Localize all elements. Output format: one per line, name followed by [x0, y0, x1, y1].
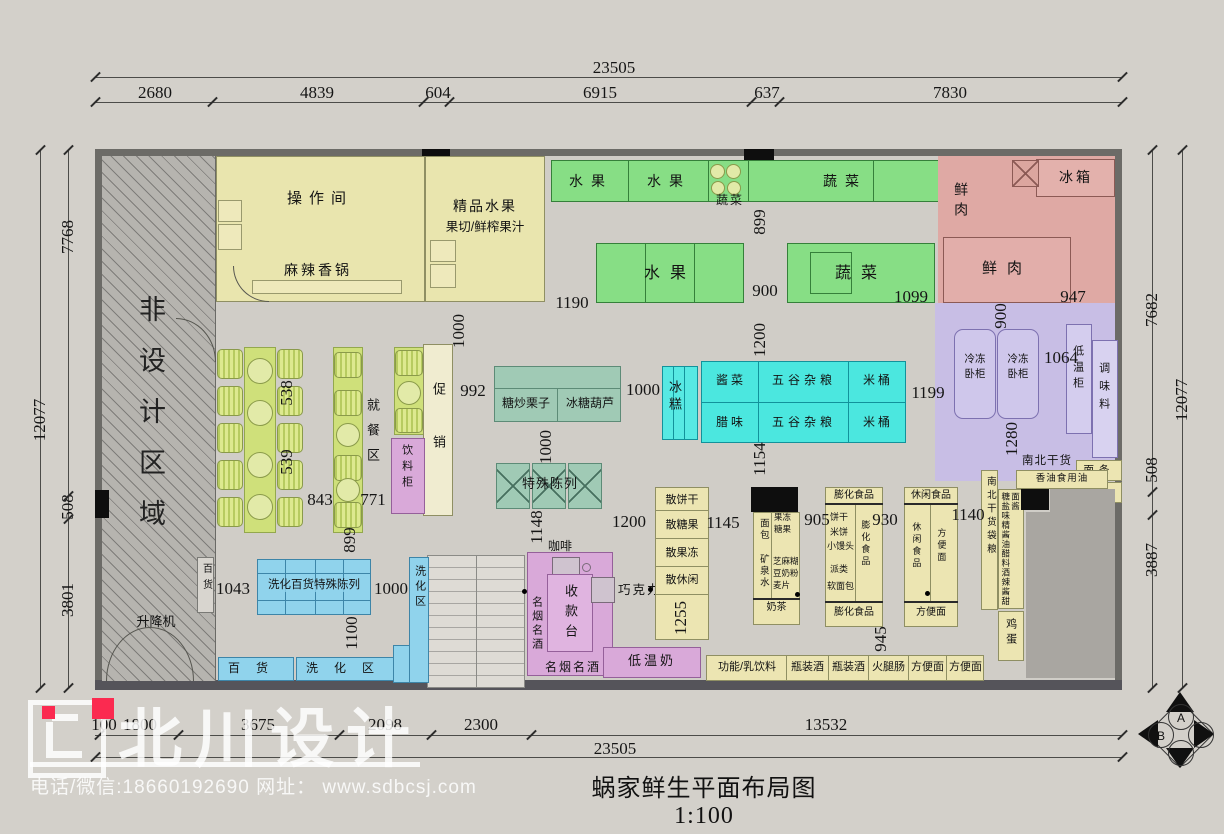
- table-seat: [336, 423, 360, 447]
- dim-right-3: 3887: [1143, 530, 1161, 590]
- dining-chair: [217, 497, 243, 527]
- coffee-label: 咖啡: [548, 540, 572, 554]
- juice-label: 果切/鲜榨果汁: [426, 220, 544, 234]
- instant-noodle-label: 方便面: [947, 661, 984, 674]
- dim-1200-bulk: 1200: [606, 513, 652, 531]
- bulk-line: [655, 538, 709, 539]
- dim-right-total: 12077: [1173, 370, 1191, 430]
- dim-left-3: 3801: [59, 570, 77, 630]
- sesame-label: 芝麻糊: [773, 557, 799, 567]
- wine-label: 瓶装酒: [787, 661, 828, 674]
- dining-chair: [217, 349, 243, 379]
- pie-label: 派类: [830, 564, 848, 574]
- dim-1043: 1043: [209, 580, 257, 598]
- water-label: 矿泉水: [757, 554, 768, 596]
- soymilk-label: 豆奶粉: [773, 569, 799, 579]
- island-line: [257, 573, 371, 574]
- gondola-line: [701, 402, 906, 403]
- fridge-label: 冰箱: [1040, 169, 1112, 185]
- gondola-line: [904, 503, 958, 505]
- gondola-line: [930, 505, 931, 601]
- bulk-line: [655, 566, 709, 567]
- dim-bottom-5: 2300: [455, 716, 507, 734]
- dot-marker: [522, 589, 527, 594]
- dim-1000-wash: 1000: [368, 580, 414, 598]
- instant-noodle-label: 方便面: [909, 661, 946, 674]
- dim-1140: 1140: [944, 506, 992, 524]
- gondola-line: [855, 505, 856, 601]
- table-seat: [397, 381, 421, 405]
- dot-marker: [925, 591, 930, 596]
- bread-label: 面包: [757, 518, 768, 550]
- dim-1280: 1280: [1003, 409, 1021, 469]
- brand-logo-glyph: [46, 722, 82, 758]
- dim-1064: 1064: [1034, 349, 1088, 367]
- storage-floor: [1050, 489, 1115, 512]
- seasoning-cabinet-label: 调味料: [1097, 362, 1110, 442]
- gondola-line: [848, 361, 849, 443]
- veg-island-label: 蔬菜: [787, 265, 935, 283]
- dim-top-6: 7830: [920, 84, 980, 102]
- table-seat: [247, 358, 273, 384]
- interior-column: [1021, 489, 1049, 510]
- premium-fruit-label: 精品水果: [432, 198, 538, 214]
- dining-chair: [217, 386, 243, 416]
- gondola-line: [753, 598, 800, 600]
- drygoods-strip-label: 南北干货袋粮: [984, 476, 995, 606]
- dim-top-total: 23505: [584, 59, 644, 77]
- dim-1154: 1154: [751, 429, 769, 489]
- dim-843: 843: [299, 491, 341, 509]
- dim-992: 992: [452, 382, 494, 400]
- dim-top-1: 2680: [125, 84, 185, 102]
- fruit-shelf-label: 水果: [632, 173, 706, 189]
- dim-1145: 1145: [700, 514, 746, 532]
- instant-noodle-vertical: 方便面: [936, 528, 946, 578]
- grain-label: 五谷杂粮: [762, 416, 846, 430]
- oil-shelf: 香油食用油: [1016, 470, 1108, 489]
- watermark-divider: [30, 762, 420, 767]
- dim-538: 538: [278, 363, 296, 423]
- dim-1200-grain: 1200: [751, 310, 769, 370]
- compass-c: C: [1168, 740, 1194, 766]
- brand-logo-bar: [52, 714, 78, 721]
- dim-right-1: 7682: [1143, 280, 1161, 340]
- dim-945: 945: [872, 609, 890, 669]
- rice-bucket-label: 米桶: [852, 374, 904, 388]
- leisure-label: 休闲食品: [904, 490, 958, 502]
- operation-room-label: 操作间: [255, 190, 385, 207]
- milktea-label: 奶茶: [753, 602, 800, 614]
- dim-top-2: 4839: [287, 84, 347, 102]
- counter: [430, 264, 456, 288]
- fruit-island-label: 水果: [596, 265, 744, 283]
- island-line: [257, 600, 371, 601]
- dim-top-4: 6915: [570, 84, 630, 102]
- cured-label: 腊味: [706, 416, 756, 430]
- storage-floor: [1026, 512, 1115, 678]
- veg-shelf-label: 蔬菜: [790, 173, 900, 189]
- oat-label: 麦片: [773, 581, 790, 591]
- compass: A B C D: [1138, 692, 1224, 778]
- brand-logo-red-accent: [42, 706, 55, 719]
- haw-label: 冰糖葫芦: [558, 397, 622, 411]
- dim-1000-chestnut: 1000: [537, 417, 555, 477]
- dim-line-right: [1152, 150, 1153, 688]
- produce-bin: [710, 164, 725, 179]
- dim-line-top: [95, 102, 1122, 103]
- wash-zone-strip-label: 洗化区: [413, 565, 426, 621]
- watermark-contact: 电话/微信:18660192690 网址： www.sdbcsj.com: [30, 772, 477, 799]
- dim-900: 900: [744, 282, 786, 300]
- dining-chair: [395, 408, 423, 433]
- cabinet-line: [684, 366, 685, 440]
- puffed-label: 膨化食品: [825, 490, 883, 502]
- table-seat: [247, 494, 273, 520]
- special-display-label: 特殊陈列: [504, 477, 596, 492]
- corner-shelf: [393, 645, 410, 683]
- compass-d: D: [1188, 722, 1214, 748]
- wine-label: 瓶装酒: [829, 661, 868, 674]
- dim-left-2: 508: [59, 477, 77, 537]
- wash-special-label: 洗化百货特殊陈列: [259, 579, 369, 592]
- dim-line-top-total: [95, 77, 1122, 78]
- shelf-divider: [628, 160, 629, 202]
- condiment-strip-label: 糖盐味精酱油醋料酒辣酱甜面酱: [1000, 492, 1023, 606]
- produce-bin: [726, 164, 741, 179]
- ice-cream-label: 冰糕: [666, 380, 681, 428]
- stairs-center-line: [476, 555, 477, 688]
- dept-shelf-row: 百货: [218, 657, 294, 681]
- tobacco-label-bottom: 名烟名酒: [545, 661, 601, 675]
- bulk-jelly-label: 散果冻: [655, 547, 709, 560]
- interior-column: [751, 487, 798, 512]
- dim-930: 930: [864, 511, 906, 529]
- tobacco-label-vertical: 名烟名酒: [530, 596, 543, 668]
- table-seat: [247, 400, 273, 426]
- dim-1199: 1199: [902, 384, 954, 402]
- table-seat: [247, 452, 273, 478]
- bulk-line: [655, 510, 709, 511]
- grain-label: 五谷杂粮: [762, 374, 846, 388]
- promo-label: 促销: [430, 382, 445, 502]
- floor-plan-page: 非设计区域 升降机 操作间 麻辣香锅 精品水果 果切/鲜榨果汁 水果 水果 蔬菜…: [0, 0, 1224, 834]
- chocolate-machine: [591, 577, 615, 603]
- bun-label: 小馒头: [827, 541, 854, 551]
- dim-left-1: 7768: [59, 207, 77, 267]
- gondola-line: [771, 512, 772, 598]
- dim-1255: 1255: [672, 588, 690, 648]
- sink-icon: [1012, 160, 1039, 187]
- dim-899-top: 899: [751, 192, 769, 252]
- dim-899-wash: 899: [341, 510, 359, 570]
- leisure-label-vertical: 休闲食品: [911, 522, 921, 584]
- jelly-label: 果冻: [774, 513, 791, 523]
- page-title: 蜗家鲜生平面布局图1:100: [563, 768, 845, 834]
- bulk-biscuit-label: 散饼干: [655, 494, 709, 507]
- dining-chair: [334, 352, 362, 378]
- cashier-label: 收款台: [562, 584, 577, 644]
- dot-marker: [648, 587, 653, 592]
- candy-label: 糖果: [774, 525, 791, 535]
- dim-1100: 1100: [343, 603, 361, 663]
- dim-947: 947: [1050, 288, 1096, 306]
- dining-zone-label: 就餐区: [364, 398, 379, 484]
- veg-bin-label: 蔬菜: [706, 194, 754, 208]
- dining-chair: [395, 350, 423, 376]
- gondola-line: [904, 601, 958, 603]
- dim-771: 771: [354, 491, 392, 509]
- counter: [218, 224, 242, 250]
- brand-logo-red-accent: [92, 698, 114, 719]
- dim-1190: 1190: [546, 294, 598, 312]
- meat-counter-label: 鲜肉: [943, 260, 1071, 277]
- freezer-chest-label: 冷冻卧柜: [1006, 352, 1030, 382]
- softbread-label: 软面包: [827, 581, 854, 591]
- dim-905: 905: [797, 511, 837, 529]
- dining-chair: [334, 390, 362, 416]
- gondola-line: [825, 601, 883, 603]
- dot-marker: [795, 592, 800, 597]
- dim-1000-entry: 1000: [450, 301, 468, 361]
- fruit-shelf-label: 水果: [556, 173, 626, 189]
- wall-column: [95, 490, 109, 518]
- gondola-line: [825, 503, 883, 505]
- counter: [218, 200, 242, 222]
- dim-539: 539: [278, 432, 296, 492]
- dining-chair: [217, 423, 243, 453]
- counter: [252, 280, 402, 294]
- pickle-label: 酱菜: [706, 374, 756, 388]
- instant-noodle-bottom: 方便面: [904, 607, 958, 619]
- drygoods-label: 南北干货: [1022, 455, 1072, 468]
- dim-1099: 1099: [886, 288, 936, 306]
- dim-bottom-6: 13532: [795, 716, 857, 734]
- dim-left-total: 12077: [31, 390, 49, 450]
- dim-900-meat: 900: [992, 286, 1010, 346]
- egg-shelf-label: 鸡蛋: [1004, 618, 1017, 656]
- puffed-label-vertical: 膨化食品: [860, 520, 870, 582]
- drink-cabinet-label: 饮料柜: [400, 444, 413, 508]
- rice-bucket-label: 米桶: [852, 416, 904, 430]
- dim-1000-mid: 1000: [620, 381, 666, 399]
- gondola-b: [825, 487, 883, 627]
- dining-chair: [217, 460, 243, 490]
- mala-hotpot-label: 麻辣香锅: [258, 262, 378, 278]
- func-milk-label: 功能/乳饮料: [708, 661, 786, 674]
- chestnut-label: 糖炒栗子: [494, 397, 558, 411]
- counter: [430, 240, 456, 262]
- bulk-leisure-label: 散休闲: [655, 574, 709, 587]
- freezer-chest-label: 冷冻卧柜: [963, 352, 987, 382]
- dim-1148: 1148: [528, 497, 546, 557]
- non-design-label: 非设计区域: [134, 295, 165, 565]
- coffee-machine-knob: [582, 563, 591, 572]
- lowtemp-milk-label: 低温奶: [603, 654, 701, 669]
- dim-bottom-total: 23505: [585, 740, 645, 758]
